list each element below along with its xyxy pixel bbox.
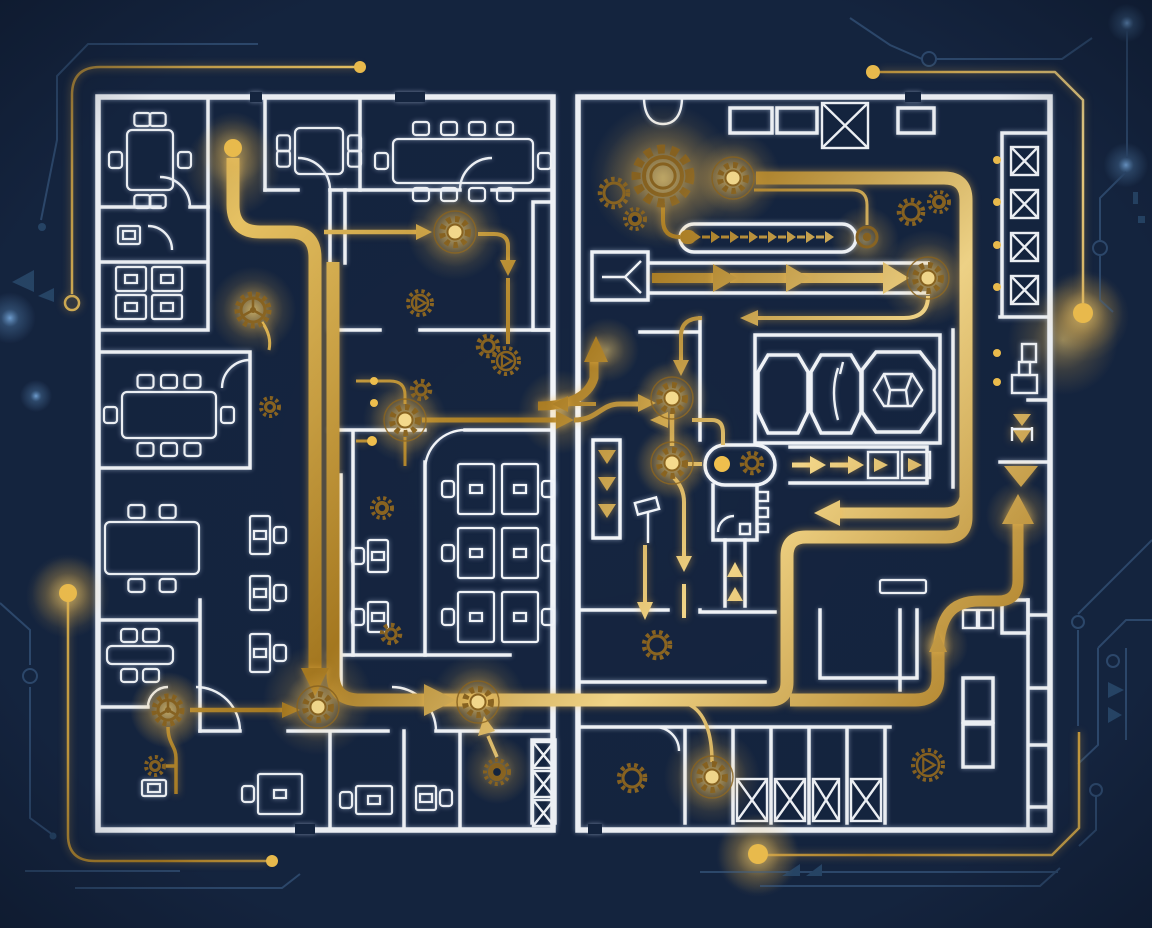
vignette <box>0 0 1152 928</box>
blueprint-canvas <box>0 0 1152 928</box>
blueprint-scene <box>0 0 1152 928</box>
